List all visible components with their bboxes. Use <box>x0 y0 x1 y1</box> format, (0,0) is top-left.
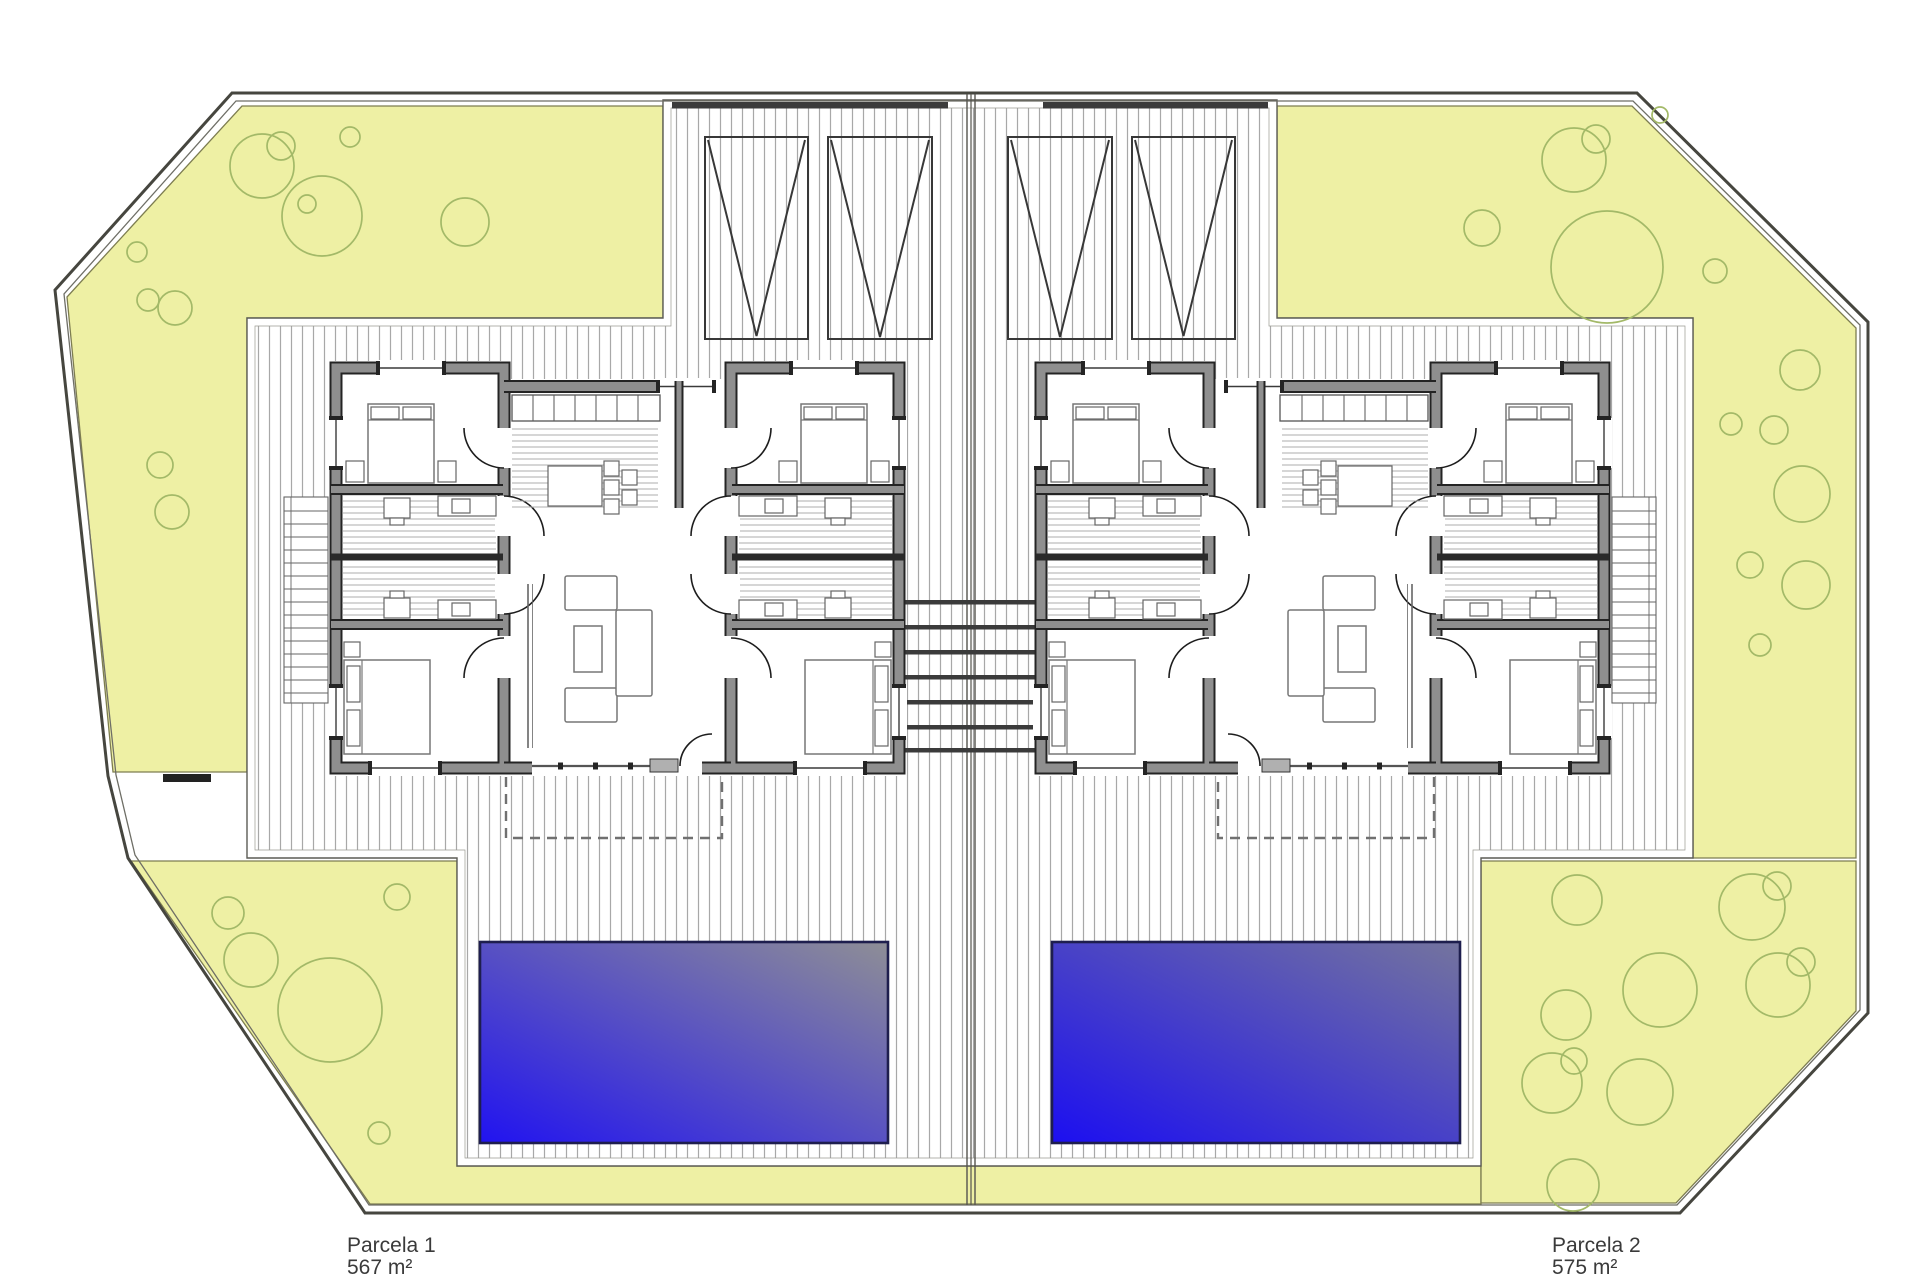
pool-parcel-2 <box>1052 942 1460 1143</box>
entrance-gate-left <box>672 102 948 109</box>
site-plan-page: Parcela 1 567 m² Parcela 2 575 m² <box>0 0 1920 1280</box>
entrance-gate-right <box>1043 102 1268 109</box>
site-plan-drawing: Parcela 1 567 m² Parcela 2 575 m² <box>0 0 1920 1280</box>
parcel-1-area: 567 m² <box>347 1256 412 1279</box>
parcel-1-label: Parcela 1 <box>347 1234 436 1257</box>
pool-parcel-1 <box>480 942 888 1143</box>
parcel-2-label: Parcela 2 <box>1552 1234 1641 1257</box>
parcel-2-area: 575 m² <box>1552 1256 1617 1279</box>
side-gate <box>163 774 211 782</box>
